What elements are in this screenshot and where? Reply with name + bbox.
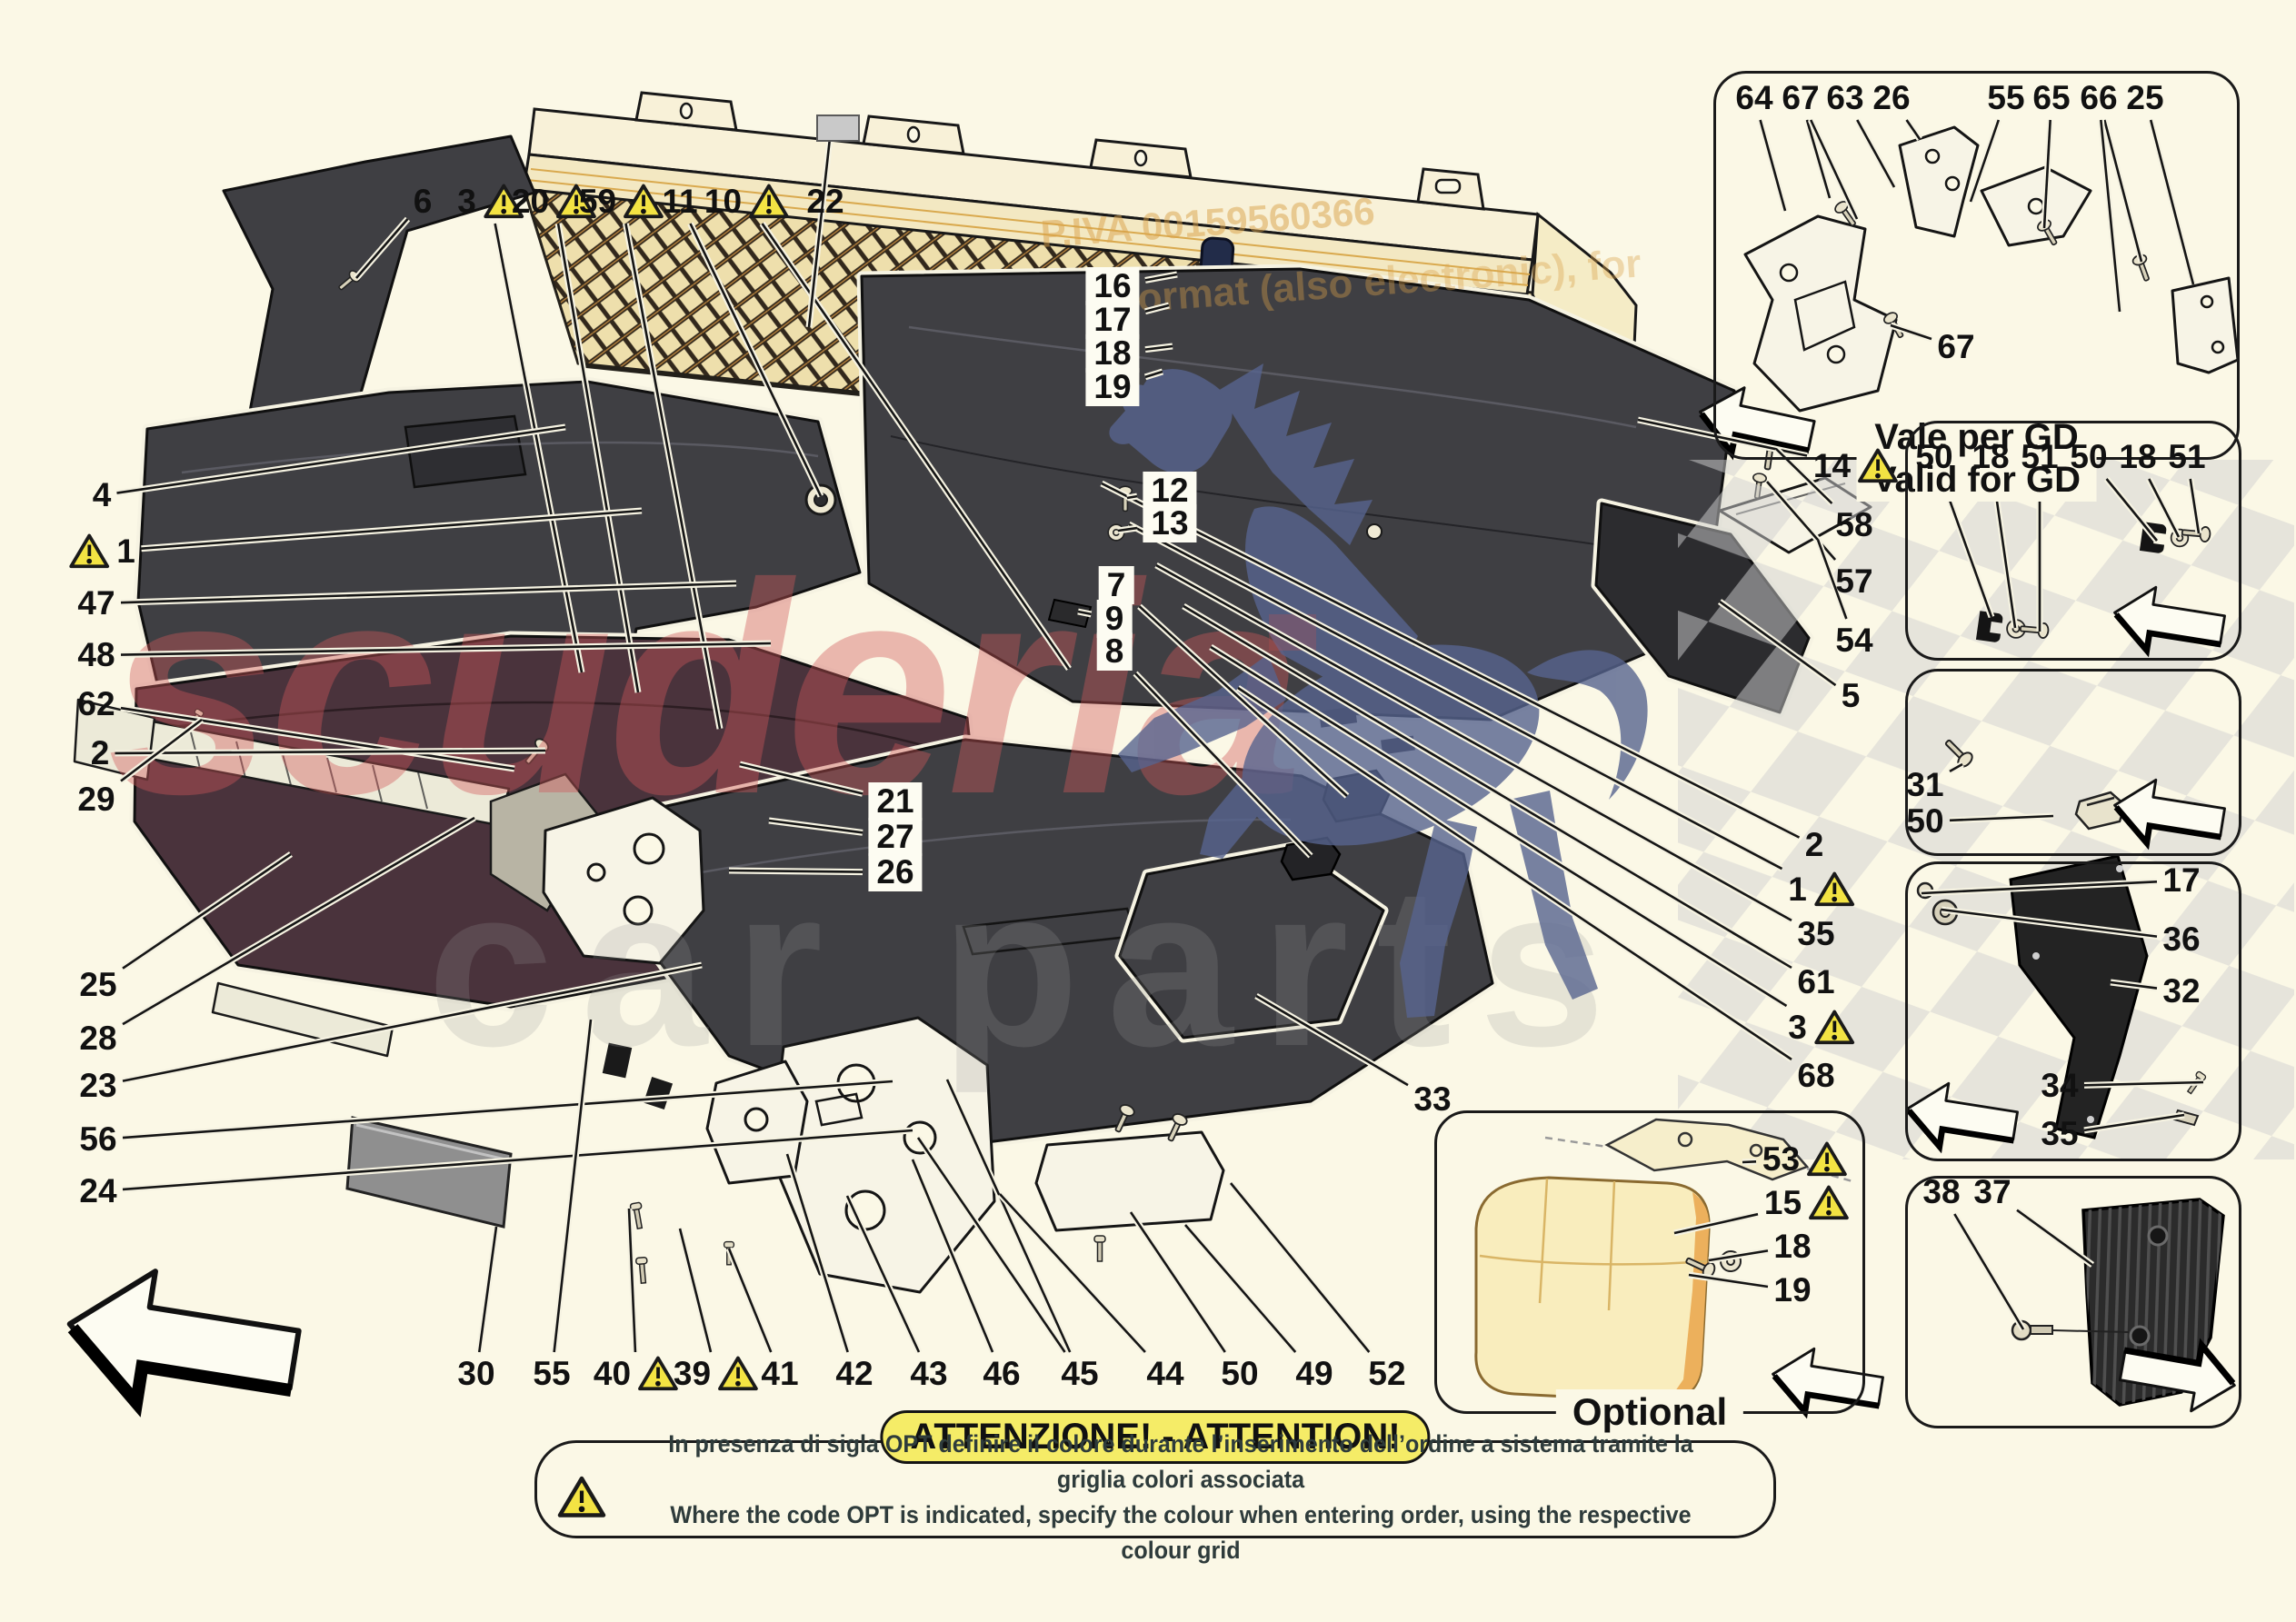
parts-diagram-page: scuderiacar partsP.IVA 00159560366format… [0, 0, 2296, 1622]
callout-number: 15 [1764, 1184, 1802, 1222]
callout-number: 24 [79, 1172, 116, 1210]
callout-35: 35 [2041, 1115, 2078, 1153]
callout-number: 55 [1987, 79, 2024, 117]
callout-42: 42 [835, 1355, 873, 1393]
callout-number: 16 [1093, 267, 1131, 305]
callout-number: 19 [1773, 1271, 1811, 1309]
warning-icon [1857, 448, 1899, 484]
callout-number: 65 [2032, 79, 2070, 117]
callout-29: 29 [77, 781, 115, 819]
callout-68: 68 [1797, 1057, 1834, 1095]
leader-line [729, 1249, 771, 1352]
callout-14: 14 [1813, 447, 1899, 485]
callout-46: 46 [983, 1355, 1020, 1393]
callout-number: 45 [1061, 1355, 1098, 1393]
callout-50: 50 [1906, 802, 1943, 841]
callout-67: 67 [1782, 79, 1819, 117]
callout-number: 1 [116, 532, 135, 571]
callout-number: 53 [1762, 1140, 1800, 1179]
warning-icon [557, 1476, 606, 1519]
callout-number: 50 [2070, 438, 2107, 476]
callout-38: 38 [1922, 1173, 1960, 1211]
callout-number: 38 [1922, 1173, 1960, 1211]
callout-number: 21 [876, 782, 913, 821]
callout-number: 64 [1735, 79, 1772, 117]
leader-line [729, 871, 863, 872]
callout-number: 34 [2041, 1067, 2078, 1105]
callout-26: 26 [1872, 79, 1910, 117]
callout-number: 18 [1773, 1228, 1811, 1266]
warning-icon [1806, 1141, 1848, 1178]
callout-number: 50 [1221, 1355, 1258, 1393]
callout-number: 56 [79, 1120, 116, 1159]
inset-footrest [1905, 1176, 2241, 1428]
callout-51: 51 [2021, 438, 2058, 476]
callout-number: 14 [1813, 447, 1851, 485]
callout-19: 19 [1773, 1271, 1811, 1309]
warning-icon [717, 1356, 759, 1392]
attention-line-italian: In presenza di sigla OPT definire il col… [646, 1427, 1715, 1498]
callout-number: 51 [2168, 438, 2205, 476]
callout-18: 18 [1773, 1228, 1811, 1266]
callout-67: 67 [1937, 328, 1974, 366]
callout-64: 64 [1735, 79, 1772, 117]
callout-number: 28 [79, 1020, 116, 1058]
callout-19: 19 [1085, 368, 1139, 406]
callout-number: 27 [876, 818, 913, 856]
callout-8: 8 [1097, 632, 1133, 671]
callout-63: 63 [1826, 79, 1863, 117]
callout-4: 4 [93, 476, 112, 514]
callout-number: 23 [79, 1067, 116, 1105]
callout-34: 34 [2041, 1067, 2078, 1105]
callout-number: 29 [77, 781, 115, 819]
callout-number: 1 [1788, 871, 1807, 909]
callout-31: 31 [1906, 766, 1943, 804]
callout-number: 19 [1093, 368, 1131, 406]
warning-icon [623, 184, 664, 220]
callout-13: 13 [1143, 504, 1196, 542]
leader-line [1127, 496, 1137, 498]
warning-icon [1813, 871, 1855, 908]
callout-52: 52 [1368, 1355, 1405, 1393]
callout-number: 30 [457, 1355, 494, 1393]
callout-number: 26 [1872, 79, 1910, 117]
callout-40: 40 [594, 1355, 679, 1393]
callout-59: 59 [579, 183, 664, 221]
callout-number: 32 [2162, 972, 2200, 1010]
callout-number: 8 [1105, 632, 1124, 671]
callout-number: 54 [1835, 622, 1872, 660]
callout-35: 35 [1797, 915, 1834, 953]
callout-number: 31 [1906, 766, 1943, 804]
callout-number: 4 [93, 476, 112, 514]
callout-17: 17 [2162, 861, 2200, 900]
callout-37: 37 [1973, 1173, 2011, 1211]
callout-number: 6 [414, 183, 433, 221]
callout-number: 18 [1972, 438, 2009, 476]
callout-32: 32 [2162, 972, 2200, 1010]
callout-number: 50 [1915, 438, 1952, 476]
warning-icon [748, 184, 790, 220]
callout-number: 18 [2119, 438, 2156, 476]
callout-3: 3 [1788, 1009, 1855, 1047]
inset-valid-for-gd: Vale per GD Valid for GD [1713, 71, 2240, 460]
callout-18: 18 [1085, 334, 1139, 373]
callout-54: 54 [1835, 622, 1872, 660]
callout-number: 37 [1973, 1173, 2011, 1211]
attention-line-english: Where the code OPT is indicated, specify… [646, 1498, 1715, 1568]
callout-6: 6 [414, 183, 433, 221]
callout-number: 22 [806, 183, 844, 221]
callout-23: 23 [79, 1067, 116, 1105]
callout-26: 26 [868, 853, 922, 891]
callout-number: 3 [1788, 1009, 1807, 1047]
callout-45: 45 [1061, 1355, 1098, 1393]
gray-tag [816, 114, 860, 142]
callout-number: 47 [77, 584, 115, 622]
callout-number: 49 [1295, 1355, 1333, 1393]
arrow-main [59, 1259, 306, 1427]
callout-43: 43 [910, 1355, 947, 1393]
callout-62: 62 [77, 685, 115, 723]
leader-line [479, 1227, 496, 1352]
callout-number: 35 [1797, 915, 1834, 953]
callout-number: 18 [1093, 334, 1131, 373]
callout-number: 68 [1797, 1057, 1834, 1095]
callout-21: 21 [868, 782, 922, 821]
callout-24: 24 [79, 1172, 116, 1210]
callout-number: 26 [876, 853, 913, 891]
callout-number: 55 [533, 1355, 570, 1393]
warning-icon [1813, 1010, 1855, 1046]
callout-50: 50 [1915, 438, 1952, 476]
callout-15: 15 [1764, 1184, 1850, 1222]
callout-55: 55 [1987, 79, 2024, 117]
callout-number: 5 [1842, 677, 1861, 715]
callout-1: 1 [68, 532, 135, 571]
callout-number: 35 [2041, 1115, 2078, 1153]
callout-number: 2 [91, 734, 110, 772]
callout-18: 18 [1972, 438, 2009, 476]
callout-18: 18 [2119, 438, 2156, 476]
callout-number: 57 [1835, 562, 1872, 601]
callout-number: 66 [2080, 79, 2117, 117]
callout-number: 46 [983, 1355, 1020, 1393]
callout-number: 44 [1146, 1355, 1183, 1393]
callout-number: 36 [2162, 920, 2200, 959]
callout-27: 27 [868, 818, 922, 856]
callout-44: 44 [1146, 1355, 1183, 1393]
callout-2: 2 [1805, 826, 1824, 864]
attention-text: In presenza di sigla OPT definire il col… [646, 1427, 1715, 1569]
callout-41: 41 [761, 1355, 798, 1393]
callout-22: 22 [806, 183, 844, 221]
leader-line [1231, 1183, 1369, 1352]
callout-number: 63 [1826, 79, 1863, 117]
callout-number: 3 [457, 183, 476, 221]
leader-line [680, 1229, 711, 1352]
callout-number: 17 [1093, 301, 1131, 339]
callout-number: 13 [1151, 504, 1188, 542]
callout-47: 47 [77, 584, 115, 622]
callout-number: 7 [1107, 566, 1126, 604]
callout-56: 56 [79, 1120, 116, 1159]
callout-number: 48 [77, 636, 115, 674]
callout-25: 25 [79, 966, 116, 1004]
warning-icon [1808, 1185, 1850, 1221]
callout-10: 10 [704, 183, 790, 221]
callout-28: 28 [79, 1020, 116, 1058]
callout-66: 66 [2080, 79, 2117, 117]
callout-number: 33 [1413, 1080, 1451, 1119]
callout-11: 11 [662, 183, 697, 221]
callout-number: 11 [662, 183, 697, 221]
callout-number: 67 [1782, 79, 1819, 117]
callout-number: 43 [910, 1355, 947, 1393]
callout-number: 17 [2162, 861, 2200, 900]
callout-number: 67 [1937, 328, 1974, 366]
callout-53: 53 [1762, 1140, 1848, 1179]
callout-39: 39 [674, 1355, 759, 1393]
callout-number: 62 [77, 685, 115, 723]
callout-number: 42 [835, 1355, 873, 1393]
callout-number: 2 [1805, 826, 1824, 864]
callout-65: 65 [2032, 79, 2070, 117]
inset-clip2 [1905, 669, 2241, 856]
callout-51: 51 [2168, 438, 2205, 476]
callout-55: 55 [533, 1355, 570, 1393]
warning-icon [68, 533, 110, 570]
callout-25: 25 [2126, 79, 2163, 117]
callout-number: 25 [79, 966, 116, 1004]
callout-58: 58 [1835, 506, 1872, 544]
callout-48: 48 [77, 636, 115, 674]
callout-number: 20 [512, 183, 549, 221]
callout-number: 52 [1368, 1355, 1405, 1393]
callout-33: 33 [1413, 1080, 1451, 1119]
leader-line [1131, 1212, 1225, 1352]
callout-50: 50 [2070, 438, 2107, 476]
callout-number: 58 [1835, 506, 1872, 544]
callout-number: 40 [594, 1355, 631, 1393]
callout-30: 30 [457, 1355, 494, 1393]
callout-50: 50 [1221, 1355, 1258, 1393]
callout-1: 1 [1788, 871, 1855, 909]
callout-36: 36 [2162, 920, 2200, 959]
callout-7: 7 [1099, 566, 1134, 604]
callout-49: 49 [1295, 1355, 1333, 1393]
callout-16: 16 [1085, 267, 1139, 305]
callout-number: 41 [761, 1355, 798, 1393]
attention-box: ATTENZIONE! - ATTENTION! In presenza di … [534, 1440, 1776, 1538]
callout-number: 39 [674, 1355, 711, 1393]
callout-number: 59 [579, 183, 616, 221]
callout-5: 5 [1842, 677, 1861, 715]
callout-2: 2 [91, 734, 110, 772]
callout-number: 50 [1906, 802, 1943, 841]
callout-number: 10 [704, 183, 742, 221]
callout-57: 57 [1835, 562, 1872, 601]
callout-number: 25 [2126, 79, 2163, 117]
callout-number: 61 [1797, 963, 1834, 1001]
callout-17: 17 [1085, 301, 1139, 339]
callout-61: 61 [1797, 963, 1834, 1001]
callout-number: 51 [2021, 438, 2058, 476]
